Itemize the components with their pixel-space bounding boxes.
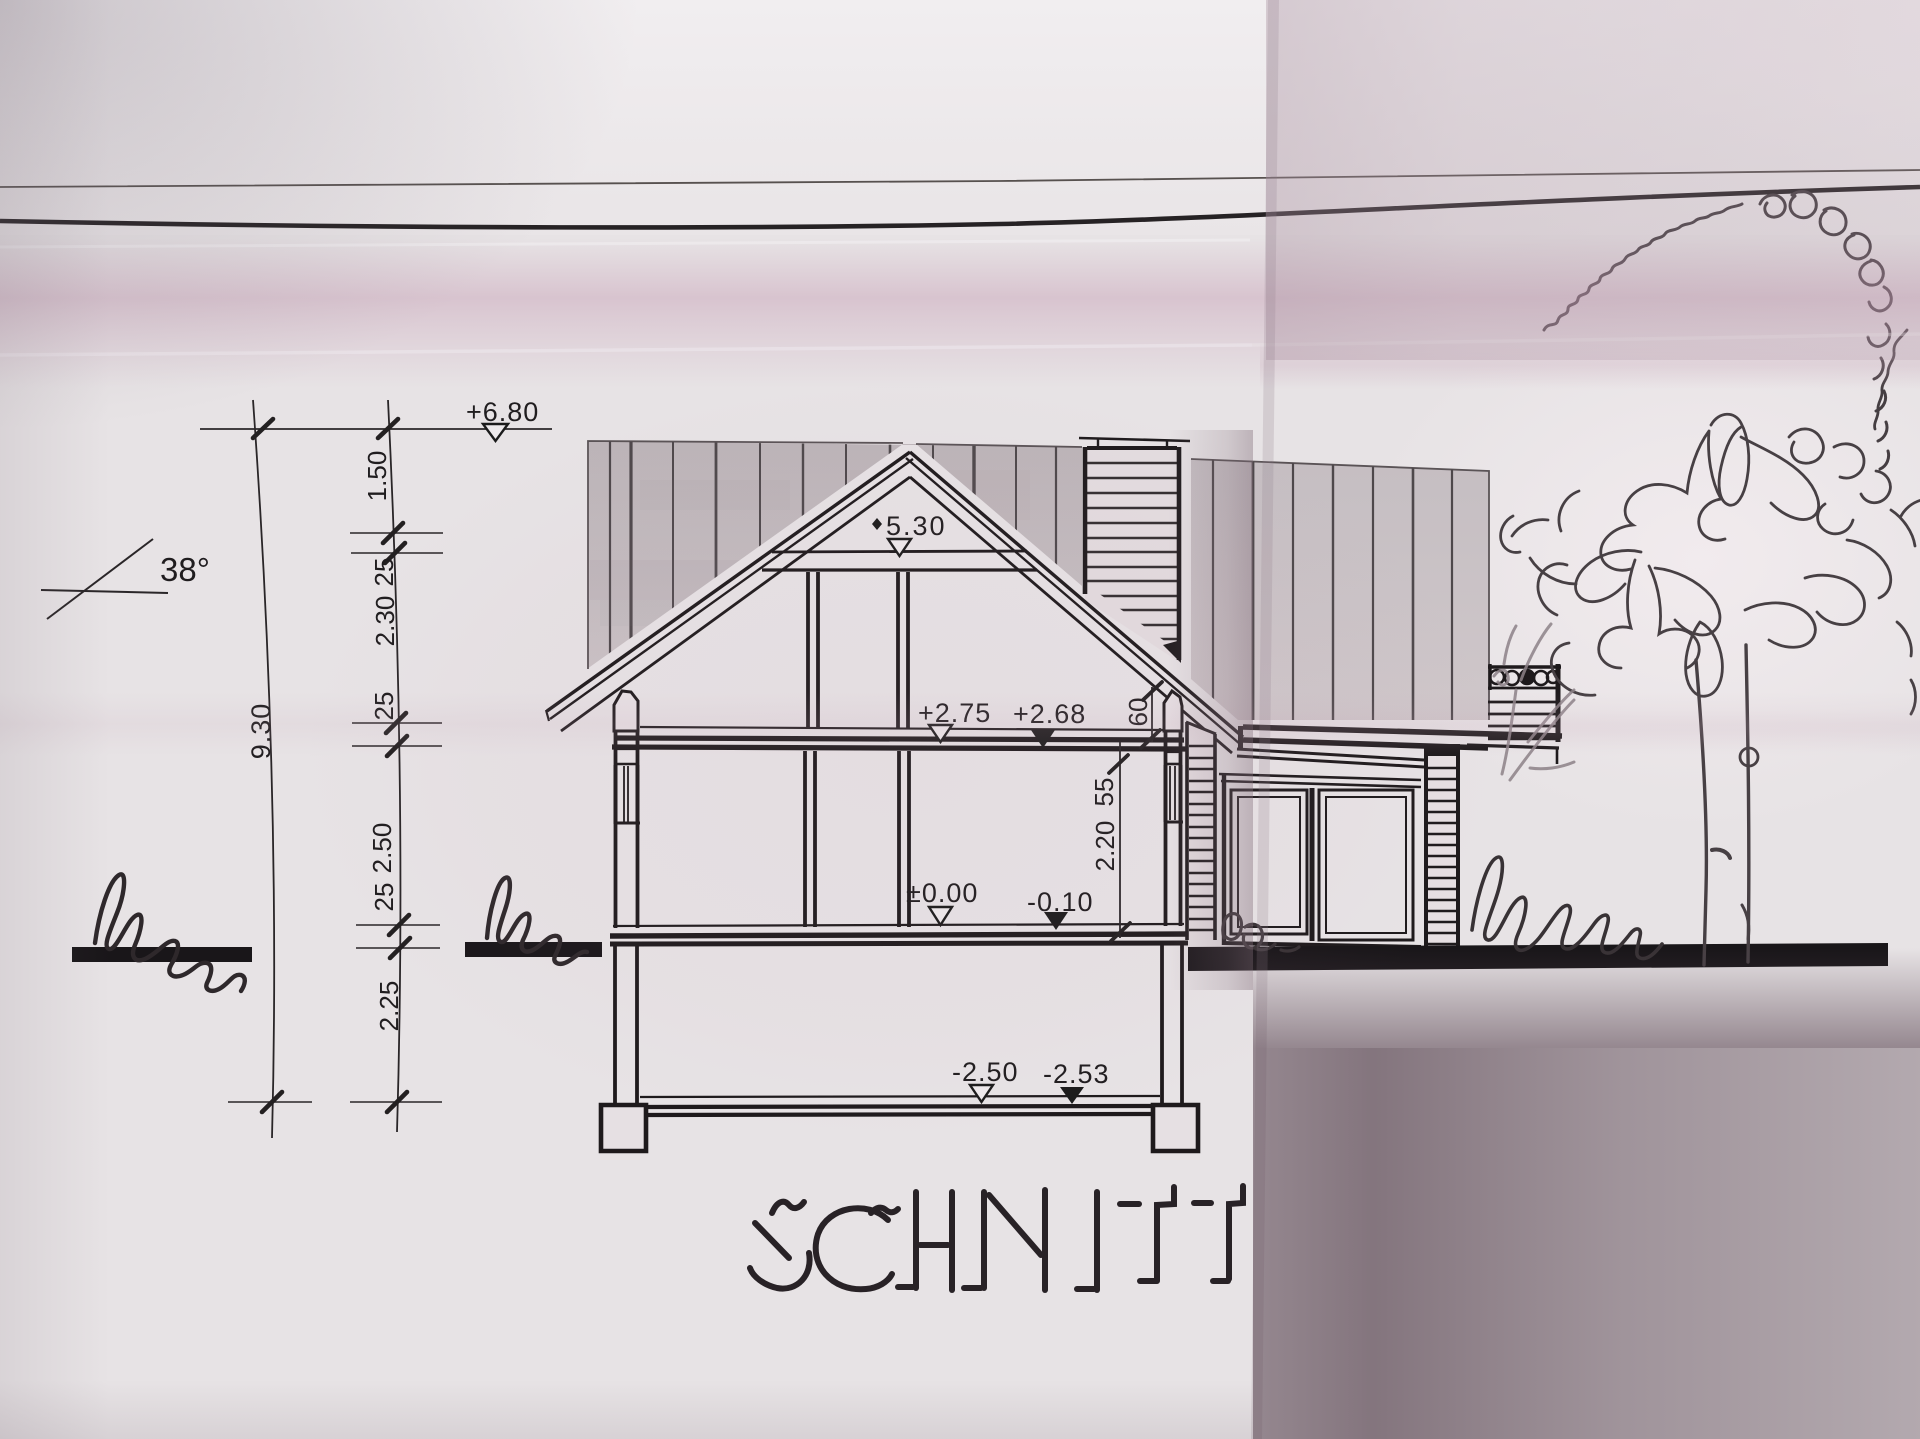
svg-text:38°: 38° xyxy=(160,551,210,588)
